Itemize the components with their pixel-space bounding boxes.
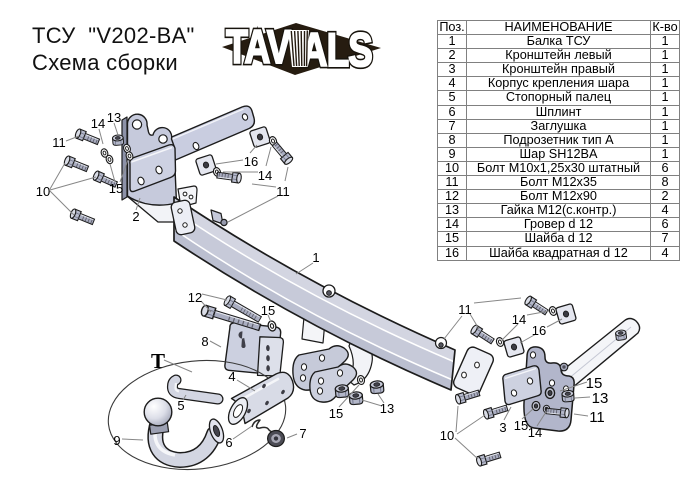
svg-text:4: 4 [228, 369, 235, 384]
svg-text:2: 2 [132, 209, 139, 224]
svg-text:11: 11 [52, 135, 66, 150]
svg-text:15: 15 [109, 181, 123, 196]
svg-text:13: 13 [107, 110, 121, 125]
svg-text:10: 10 [440, 428, 454, 443]
svg-text:11: 11 [589, 409, 605, 426]
svg-text:14: 14 [91, 116, 105, 131]
svg-text:12: 12 [188, 290, 202, 305]
svg-text:3: 3 [499, 420, 506, 435]
svg-text:9: 9 [113, 433, 120, 448]
svg-text:1: 1 [312, 250, 319, 265]
svg-text:11: 11 [276, 184, 290, 199]
svg-text:13: 13 [592, 390, 609, 407]
svg-text:16: 16 [532, 323, 546, 338]
svg-text:14: 14 [258, 168, 272, 183]
svg-text:11: 11 [458, 302, 472, 317]
svg-text:ALS: ALS [301, 24, 372, 76]
svg-text:7: 7 [299, 426, 306, 441]
svg-text:10: 10 [36, 184, 50, 199]
svg-text:14: 14 [512, 312, 526, 327]
svg-text:13: 13 [380, 401, 394, 416]
svg-text:5: 5 [177, 398, 184, 413]
svg-text:6: 6 [225, 435, 232, 450]
svg-text:15: 15 [261, 303, 275, 318]
svg-text:8: 8 [201, 334, 208, 349]
svg-text:16: 16 [244, 154, 258, 169]
svg-text:15: 15 [514, 418, 528, 433]
svg-text:T: T [151, 349, 165, 373]
svg-text:15: 15 [329, 406, 343, 421]
svg-text:TAV: TAV [226, 20, 291, 73]
svg-text:14: 14 [528, 425, 542, 440]
